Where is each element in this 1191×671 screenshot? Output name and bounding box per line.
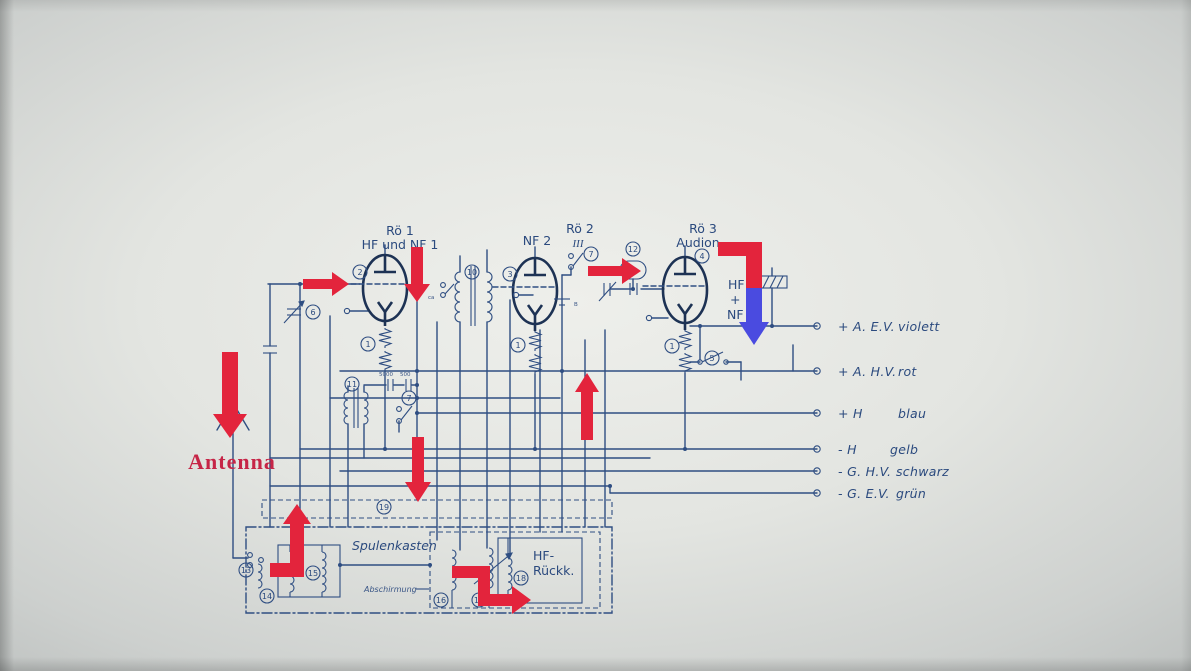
terminal-schwarz: - G. H.V. schwarz (814, 464, 949, 479)
svg-text:15: 15 (308, 569, 318, 578)
tube2-input-label: NF 2 (523, 233, 551, 248)
terminal-name: + H (838, 406, 863, 421)
cathode-resistors (379, 328, 691, 374)
svg-text:11: 11 (347, 380, 357, 389)
circled-19: 19 (377, 500, 391, 514)
terminal-color: rot (898, 364, 917, 379)
terminal-color: violett (898, 319, 940, 334)
terminal-color: schwarz (896, 464, 949, 479)
svg-text:5: 5 (709, 354, 714, 363)
tube1-name: Rö 1 (386, 223, 414, 238)
svg-text:6: 6 (310, 308, 315, 317)
circled-1a: 1 (361, 337, 375, 351)
svg-text:1: 1 (515, 341, 520, 350)
feedback-label-2: Rückk. (533, 563, 574, 578)
plus-label: + (730, 292, 740, 307)
circled-18: 18 (514, 571, 528, 585)
arrow-down-antenna (213, 352, 247, 438)
svg-text:19: 19 (379, 503, 389, 512)
svg-text:1: 1 (669, 342, 674, 351)
arrow-up-mid (575, 373, 599, 440)
terminal-color: gelb (890, 442, 918, 457)
schematic-photo: + A. E.V. violett + A. H.V. rot + H blau… (0, 0, 1191, 671)
terminal-color: blau (898, 406, 926, 421)
circled-1c: 1 (665, 339, 679, 353)
feedback-label-1: HF- (533, 548, 554, 563)
svg-text:18: 18 (516, 574, 526, 583)
circled-14: 14 (260, 589, 274, 603)
svg-text:7: 7 (406, 394, 411, 403)
svg-text:12: 12 (628, 245, 638, 254)
tiny-cap-value-1: 5000 (379, 372, 393, 378)
circled-10: 10 (465, 265, 479, 279)
circled-15: 15 (306, 566, 320, 580)
terminal-name: - H (838, 442, 857, 457)
terminal-violett: + A. E.V. violett (814, 319, 941, 334)
terminal-name: + A. H.V. (838, 364, 896, 379)
antenna-label: Antenna (188, 449, 276, 474)
arrow-down-shield (405, 437, 431, 502)
svg-text:10: 10 (467, 268, 477, 277)
shield-label: Abschirmung (363, 585, 417, 594)
svg-text:4: 4 (699, 252, 704, 261)
circled-6: 6 (306, 305, 320, 319)
tube1-desc: HF und NF 1 (362, 237, 439, 252)
circled-11: 11 (345, 377, 359, 391)
terminal-name: - G. E.V. (838, 486, 890, 501)
circled-numbers: 2 10 3 7 12 4 6 1 11 7 1 1 5 19 13 14 15… (239, 242, 719, 607)
circled-7a: 7 (584, 247, 598, 261)
terminal-name: - G. H.V. (838, 464, 891, 479)
circled-1b: 1 (511, 338, 525, 352)
radio-schematic: + A. E.V. violett + A. H.V. rot + H blau… (0, 0, 1191, 671)
svg-text:13: 13 (241, 566, 251, 575)
tube2-numeral: III (572, 238, 585, 250)
tube-audion (643, 257, 707, 330)
tiny-b-label: B (574, 302, 578, 308)
hf-label: HF (728, 277, 745, 292)
tiny-cap-value-2: 500 (400, 372, 411, 378)
tube-ro1 (343, 255, 407, 326)
terminal-gelb: - H gelb (814, 442, 918, 457)
tube3-name: Rö 3 (689, 221, 717, 236)
svg-text:14: 14 (262, 592, 272, 601)
coil-box-label: Spulenkasten (352, 538, 437, 553)
svg-text:3: 3 (507, 270, 512, 279)
circled-5: 5 (705, 351, 719, 365)
tube3-desc: Audion. (676, 235, 723, 250)
terminal-rot: + A. H.V. rot (814, 364, 918, 379)
svg-text:2: 2 (357, 268, 362, 277)
tiny-ca-label: ca (428, 295, 434, 301)
circled-4: 4 (695, 249, 709, 263)
svg-text:7: 7 (588, 250, 593, 259)
terminal-gruen: - G. E.V. grün (814, 486, 926, 501)
terminal-blau: + H blau (814, 406, 926, 421)
svg-text:16: 16 (436, 596, 446, 605)
svg-text:1: 1 (365, 340, 370, 349)
arrow-up-coilbox (270, 504, 311, 577)
tube2-name: Rö 2 (566, 221, 594, 236)
terminal-color: grün (896, 486, 926, 501)
terminal-name: + A. E.V. (838, 319, 895, 334)
arrow-right-tube1 (303, 272, 349, 296)
circled-16: 16 (434, 593, 448, 607)
nf-label: NF (727, 307, 744, 322)
circled-12: 12 (626, 242, 640, 256)
transformer-lower (344, 388, 368, 428)
